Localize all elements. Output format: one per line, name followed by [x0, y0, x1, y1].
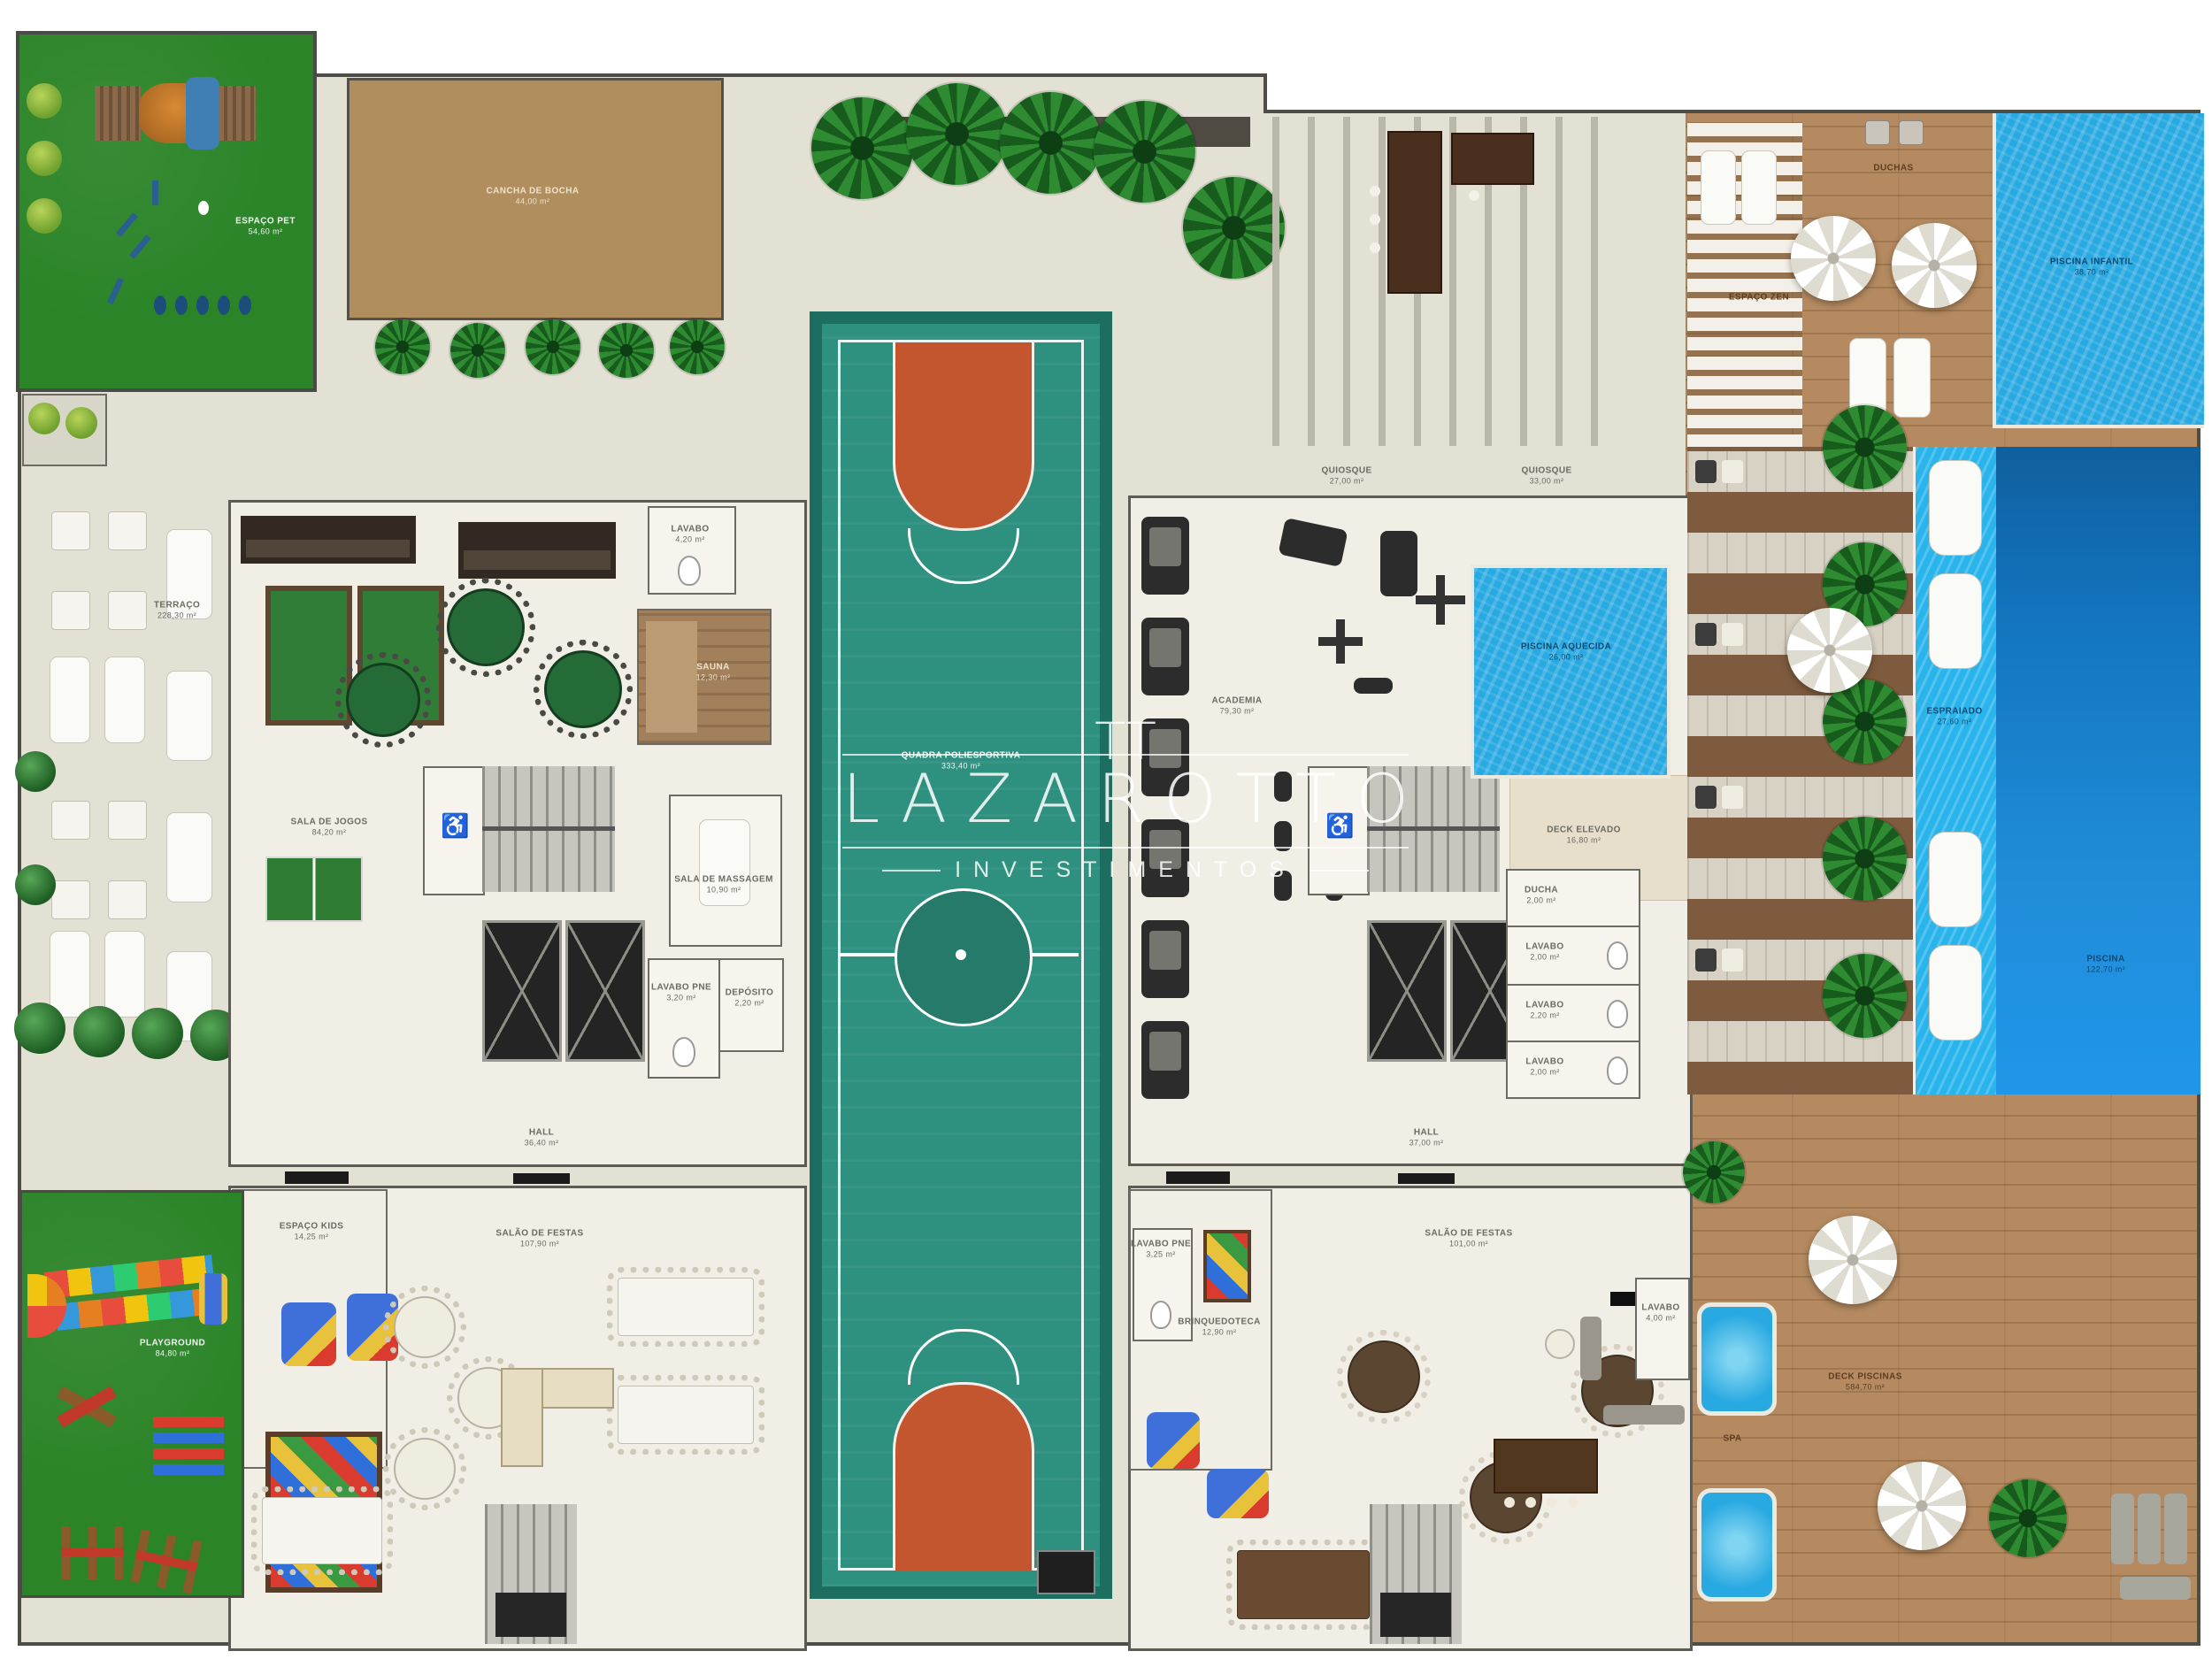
gray-lounger — [2164, 1494, 2187, 1564]
deck-chair — [1695, 786, 1717, 809]
round-table — [1348, 1340, 1420, 1413]
round-table — [394, 1438, 456, 1500]
agility-pole — [116, 212, 138, 236]
palm-tree — [1823, 405, 1907, 489]
service-shaft — [1380, 1593, 1451, 1637]
pool-table — [265, 586, 352, 726]
storage-room — [718, 958, 784, 1052]
sun-lounger — [104, 657, 145, 743]
stool — [1547, 1497, 1557, 1508]
court-key-top — [893, 342, 1034, 531]
doormat — [285, 1171, 349, 1184]
deck-chair — [1722, 949, 1743, 972]
stool — [1469, 190, 1479, 201]
stairs — [482, 766, 615, 892]
deck-chair — [1722, 786, 1743, 809]
sofa — [1580, 1317, 1601, 1380]
sun-lounger — [50, 657, 90, 743]
gym-bench — [1354, 678, 1393, 694]
kiosk-pergola — [1272, 117, 1622, 446]
bocce-court — [347, 78, 724, 320]
tree — [132, 1008, 183, 1059]
sun-lounger — [1893, 338, 1931, 418]
palm-tree — [599, 323, 654, 378]
bar-counter — [246, 540, 410, 557]
treadmill — [1141, 517, 1189, 595]
play-bar — [153, 1464, 224, 1475]
umbrella — [1809, 1216, 1897, 1304]
bush — [27, 141, 62, 176]
play-bar — [153, 1432, 224, 1443]
play-structure — [281, 1302, 336, 1366]
shower-pad — [1865, 120, 1890, 145]
sun-lounger — [166, 529, 212, 619]
spin-bike — [1274, 772, 1292, 802]
playground-area — [19, 1190, 244, 1598]
sun-lounger — [1741, 150, 1777, 225]
climbing-bar — [135, 1550, 198, 1571]
banquet-table — [618, 1386, 754, 1444]
treadmill — [1141, 819, 1189, 897]
in-pool-lounger — [1929, 945, 1982, 1041]
lavabo-room — [1635, 1278, 1690, 1380]
kiosk-counter — [1387, 131, 1442, 294]
stool — [1504, 1497, 1515, 1508]
stair-rail — [1367, 826, 1500, 831]
stairs — [1367, 766, 1500, 892]
shower-pad — [1899, 120, 1924, 145]
toilet — [1150, 1301, 1171, 1329]
treadmill-belt — [1149, 527, 1181, 566]
wall — [1263, 73, 1267, 113]
spin-bike — [1274, 871, 1292, 901]
gray-lounger — [2138, 1494, 2161, 1564]
in-pool-lounger — [1929, 573, 1982, 669]
treadmill-belt — [1149, 628, 1181, 667]
partition-wall — [1508, 1041, 1639, 1042]
treadmill — [1141, 718, 1189, 796]
treadmill-belt — [1149, 729, 1181, 768]
side-table — [108, 801, 147, 840]
palm-tree — [1989, 1479, 2067, 1557]
bush — [65, 407, 97, 439]
spa-tub — [1697, 1488, 1777, 1601]
umbrella — [1892, 223, 1977, 308]
cone — [218, 296, 230, 315]
kiosk-counter — [1451, 133, 1534, 185]
banquet-table — [1237, 1550, 1370, 1619]
sauna-bench — [646, 621, 697, 733]
main-pool — [1996, 447, 2200, 1094]
treadmill — [1141, 618, 1189, 695]
agility-pole — [152, 180, 158, 205]
side-table — [51, 591, 90, 630]
washroom-block — [1506, 869, 1640, 1099]
massage-room — [669, 795, 782, 947]
palm-tree — [375, 319, 430, 374]
toilet — [1607, 941, 1628, 970]
tree — [73, 1006, 125, 1057]
gray-lounger — [2120, 1577, 2191, 1600]
toilet — [1607, 1000, 1628, 1028]
cone — [175, 296, 188, 315]
palm-tree — [1183, 177, 1285, 279]
palm-tree — [1000, 92, 1102, 194]
court-key-bottom — [893, 1382, 1034, 1571]
elevator — [482, 920, 562, 1062]
palm-tree — [526, 319, 580, 374]
tree — [15, 864, 56, 905]
side-table — [1545, 1329, 1575, 1359]
wheelchair-icon: ♿ — [1325, 814, 1354, 837]
stool — [1568, 1497, 1578, 1508]
stool — [1525, 1497, 1536, 1508]
weight-station — [1416, 575, 1465, 625]
stair-rail — [482, 826, 615, 831]
play-structure — [1207, 1469, 1269, 1518]
banquet-table — [262, 1497, 382, 1564]
net-line — [313, 858, 316, 920]
treadmill-belt — [1149, 931, 1181, 970]
treadmill — [1141, 1021, 1189, 1099]
spin-bike — [1274, 821, 1292, 851]
sun-lounger — [50, 931, 90, 1018]
stool — [1370, 242, 1380, 253]
serving-counter — [501, 1368, 543, 1467]
palm-tree — [1683, 1141, 1745, 1203]
side-table — [108, 511, 147, 550]
pet-area — [16, 31, 317, 392]
bush — [28, 403, 60, 434]
toilet — [1607, 1056, 1628, 1085]
doormat — [513, 1173, 570, 1184]
dog-figure — [198, 201, 209, 215]
in-pool-lounger — [1929, 460, 1982, 556]
cone — [154, 296, 166, 315]
massage-bed — [699, 819, 750, 906]
heated-pool — [1471, 565, 1671, 779]
tree — [15, 751, 56, 792]
spa-tub — [1697, 1302, 1777, 1416]
dog-tunnel — [186, 77, 219, 150]
doormat — [1398, 1173, 1455, 1184]
bar-counter — [464, 550, 611, 570]
elevator — [1367, 920, 1447, 1062]
floor-plan: ♿ ♿ — [0, 0, 2212, 1659]
palm-tree — [1094, 101, 1195, 203]
service-shaft — [495, 1593, 566, 1637]
kids-pool — [1993, 113, 2204, 428]
agility-pole — [129, 234, 151, 258]
side-table — [51, 511, 90, 550]
umbrella — [1791, 216, 1876, 301]
stool — [1370, 186, 1380, 196]
sun-lounger — [166, 812, 212, 902]
game-table — [544, 650, 622, 728]
stool — [1370, 214, 1380, 225]
play-structure — [347, 1294, 398, 1361]
side-table — [51, 801, 90, 840]
deck-chair — [1695, 460, 1717, 483]
sports-court — [810, 311, 1112, 1599]
center-spot — [956, 949, 966, 960]
treadmill-belt — [1149, 830, 1181, 869]
play-rug — [1203, 1230, 1251, 1302]
climbing-bar — [61, 1548, 123, 1556]
deck-chair — [1695, 949, 1717, 972]
palm-tree — [811, 97, 913, 199]
court-surface — [822, 324, 1100, 1586]
weight-station — [1318, 619, 1363, 664]
doormat — [1166, 1171, 1230, 1184]
umbrella — [1878, 1462, 1966, 1550]
wheelchair-icon: ♿ — [441, 814, 469, 837]
climbing-frame — [61, 1526, 123, 1579]
accessible-wc-room: ♿ — [1308, 766, 1370, 895]
treadmill-belt — [1149, 1032, 1181, 1071]
cone — [196, 296, 209, 315]
weight-machine — [1380, 531, 1417, 596]
cone — [239, 296, 251, 315]
play-bar — [153, 1448, 224, 1459]
dog-ramp — [95, 86, 141, 141]
wall — [308, 73, 1267, 77]
ping-pong-table — [265, 856, 363, 922]
sun-lounger — [104, 931, 145, 1018]
gray-lounger — [2111, 1494, 2134, 1564]
service-stairs — [1370, 1504, 1462, 1644]
deck-chair — [1722, 623, 1743, 646]
climbing-frame — [131, 1529, 203, 1594]
toilet — [678, 556, 701, 586]
sauna-room — [637, 609, 772, 745]
sun-lounger — [166, 671, 212, 761]
tree — [14, 1002, 65, 1054]
deck-chair — [1695, 623, 1717, 646]
play-bar — [153, 1417, 224, 1427]
sofa — [1603, 1405, 1685, 1425]
court-equipment-box — [1037, 1550, 1095, 1594]
treadmill — [1141, 920, 1189, 998]
in-pool-lounger — [1929, 832, 1982, 927]
palm-tree — [450, 323, 505, 378]
banquet-table — [618, 1278, 754, 1336]
partition-wall — [1508, 984, 1639, 986]
side-table — [51, 880, 90, 919]
accessible-wc-room: ♿ — [423, 766, 485, 895]
play-structure — [1147, 1412, 1200, 1469]
umbrella — [1787, 608, 1872, 693]
round-table — [394, 1296, 456, 1358]
game-table — [346, 663, 420, 737]
bush — [27, 83, 62, 119]
spring-rider — [199, 1273, 227, 1325]
side-table — [108, 880, 147, 919]
palm-tree — [1823, 954, 1907, 1038]
deck-chair — [1722, 460, 1743, 483]
bush — [27, 198, 62, 234]
sun-lounger — [1701, 150, 1736, 225]
game-table — [447, 588, 525, 666]
palm-tree — [1823, 817, 1907, 901]
side-table — [108, 591, 147, 630]
elevator — [565, 920, 645, 1062]
service-stairs — [485, 1504, 577, 1644]
partition-wall — [1508, 926, 1639, 927]
palm-tree — [906, 83, 1008, 185]
palm-tree — [670, 319, 725, 374]
kitchen-island — [1494, 1439, 1598, 1494]
agility-pole — [107, 278, 124, 304]
toilet — [672, 1037, 695, 1067]
top-right-margin — [1265, 75, 2200, 111]
